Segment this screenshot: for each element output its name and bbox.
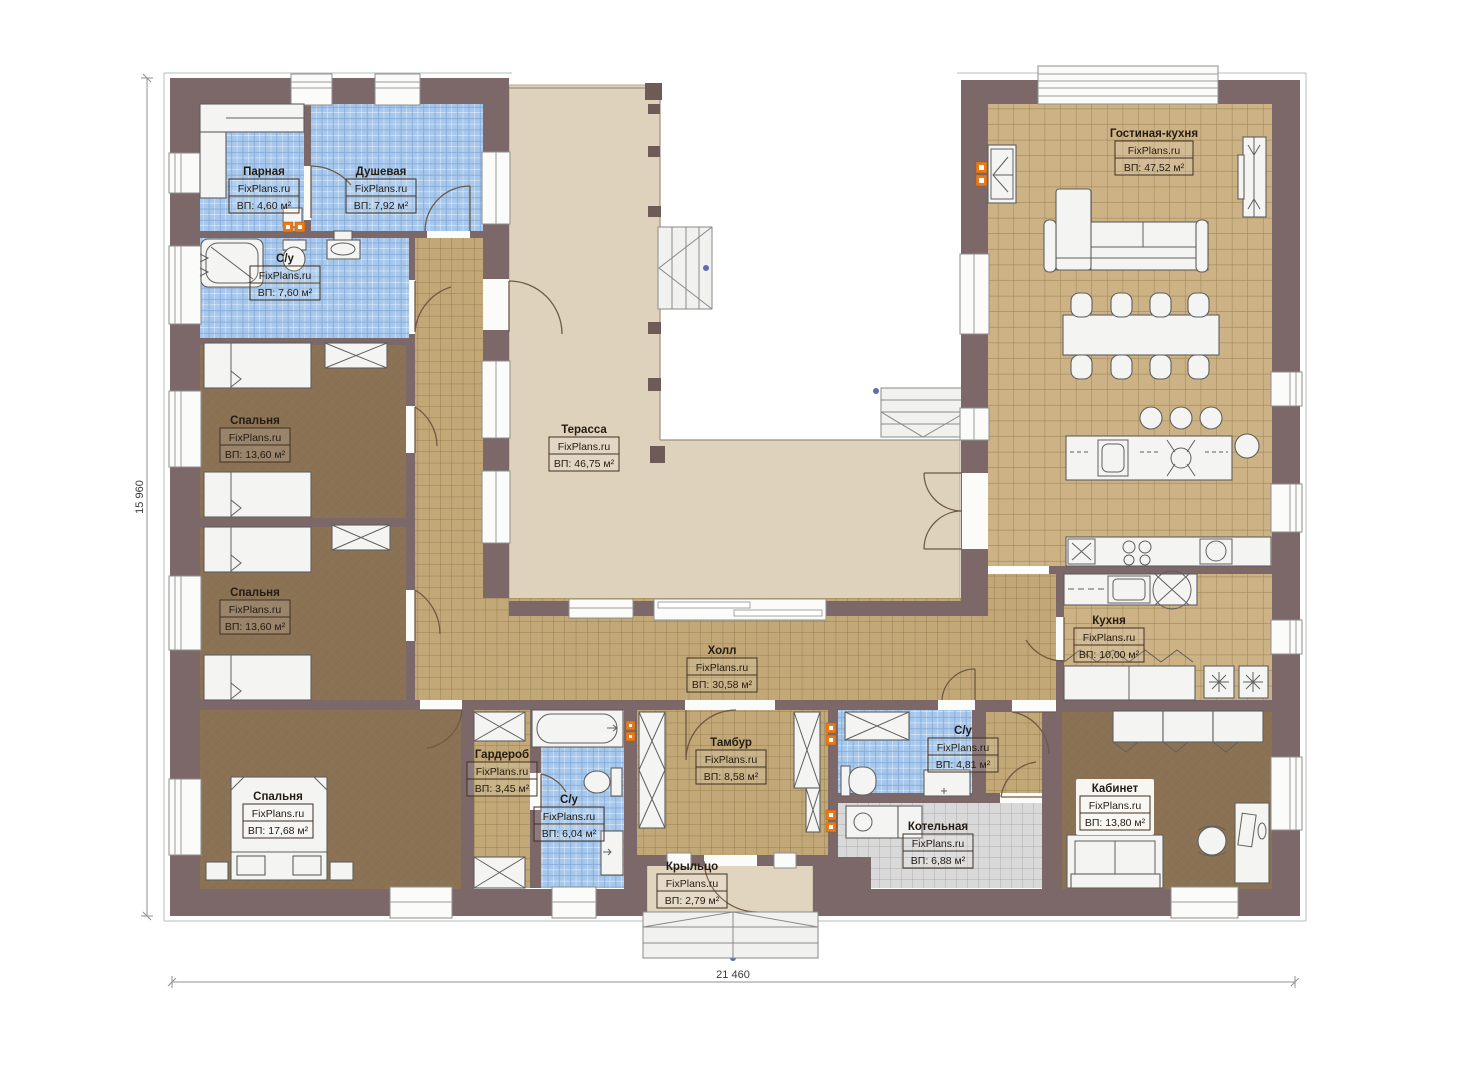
svg-text:ВП: 46,75 м²: ВП: 46,75 м² xyxy=(554,458,615,470)
svg-text:FixPlans.ru: FixPlans.ru xyxy=(355,183,408,195)
svg-text:Спальня: Спальня xyxy=(230,415,280,427)
svg-text:FixPlans.ru: FixPlans.ru xyxy=(238,183,291,195)
svg-text:ВП: 4,60 м²: ВП: 4,60 м² xyxy=(237,200,292,212)
svg-text:Кабинет: Кабинет xyxy=(1092,783,1139,795)
svg-text:ВП: 17,68 м²: ВП: 17,68 м² xyxy=(248,825,309,837)
svg-text:Терасса: Терасса xyxy=(561,424,607,436)
svg-text:FixPlans.ru: FixPlans.ru xyxy=(476,766,529,778)
svg-text:ВП: 7,92 м²: ВП: 7,92 м² xyxy=(354,200,409,212)
svg-text:FixPlans.ru: FixPlans.ru xyxy=(912,838,965,850)
svg-text:FixPlans.ru: FixPlans.ru xyxy=(229,432,282,444)
svg-text:FixPlans.ru: FixPlans.ru xyxy=(1083,632,1136,644)
svg-text:Спальня: Спальня xyxy=(230,587,280,599)
svg-text:FixPlans.ru: FixPlans.ru xyxy=(1089,800,1142,812)
svg-text:FixPlans.ru: FixPlans.ru xyxy=(252,808,305,820)
svg-text:ВП: 3,45 м²: ВП: 3,45 м² xyxy=(475,783,530,795)
svg-text:Спальня: Спальня xyxy=(253,791,303,803)
svg-text:FixPlans.ru: FixPlans.ru xyxy=(937,742,990,754)
svg-text:ВП: 7,60 м²: ВП: 7,60 м² xyxy=(258,287,313,299)
svg-text:Кухня: Кухня xyxy=(1092,615,1126,627)
svg-text:ВП: 13,80 м²: ВП: 13,80 м² xyxy=(1085,817,1146,829)
svg-text:FixPlans.ru: FixPlans.ru xyxy=(666,878,719,890)
svg-text:FixPlans.ru: FixPlans.ru xyxy=(705,754,758,766)
svg-text:FixPlans.ru: FixPlans.ru xyxy=(259,270,312,282)
svg-text:Котельная: Котельная xyxy=(908,821,968,833)
svg-text:FixPlans.ru: FixPlans.ru xyxy=(229,604,282,616)
svg-text:ВП: 6,88 м²: ВП: 6,88 м² xyxy=(911,855,966,867)
svg-text:ВП: 47,52 м²: ВП: 47,52 м² xyxy=(1124,162,1185,174)
svg-text:Гардероб: Гардероб xyxy=(475,749,529,761)
svg-text:FixPlans.ru: FixPlans.ru xyxy=(558,441,611,453)
svg-text:Крыльцо: Крыльцо xyxy=(666,861,718,873)
svg-text:FixPlans.ru: FixPlans.ru xyxy=(1128,145,1181,157)
svg-text:Тамбур: Тамбур xyxy=(710,737,752,749)
svg-text:Душевая: Душевая xyxy=(356,166,407,178)
svg-text:Парная: Парная xyxy=(243,166,285,178)
svg-text:С/у: С/у xyxy=(954,725,973,737)
svg-text:21 460: 21 460 xyxy=(716,969,750,981)
svg-text:FixPlans.ru: FixPlans.ru xyxy=(543,811,596,823)
svg-text:С/у: С/у xyxy=(560,794,579,806)
svg-text:Гостиная-кухня: Гостиная-кухня xyxy=(1110,128,1198,140)
svg-text:ВП: 30,58 м²: ВП: 30,58 м² xyxy=(692,679,753,691)
svg-text:С/у: С/у xyxy=(276,253,295,265)
svg-text:ВП: 10,00 м²: ВП: 10,00 м² xyxy=(1079,649,1140,661)
svg-text:ВП: 4,81 м²: ВП: 4,81 м² xyxy=(936,759,991,771)
svg-text:ВП: 8,58 м²: ВП: 8,58 м² xyxy=(704,771,759,783)
svg-text:ВП: 13,60 м²: ВП: 13,60 м² xyxy=(225,621,286,633)
svg-text:ВП: 6,04 м²: ВП: 6,04 м² xyxy=(542,828,597,840)
svg-text:Холл: Холл xyxy=(708,645,737,657)
svg-text:ВП: 13,60 м²: ВП: 13,60 м² xyxy=(225,449,286,461)
svg-text:ВП: 2,79 м²: ВП: 2,79 м² xyxy=(665,895,720,907)
svg-text:15 960: 15 960 xyxy=(134,480,146,514)
svg-text:FixPlans.ru: FixPlans.ru xyxy=(696,662,749,674)
